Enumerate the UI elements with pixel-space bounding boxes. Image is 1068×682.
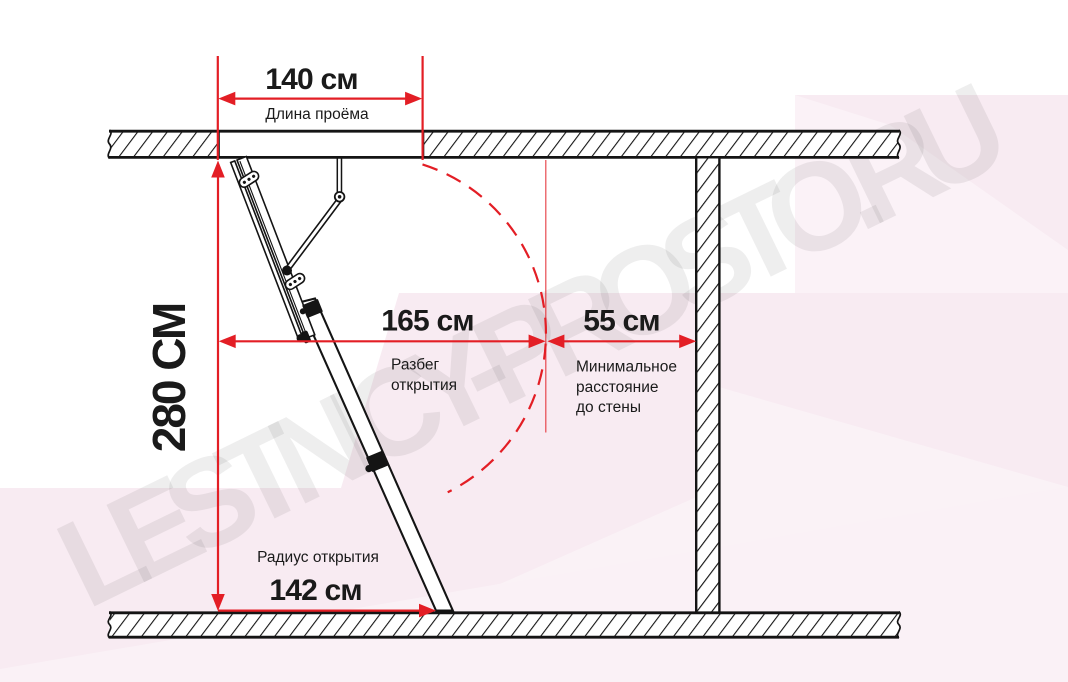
svg-text:до стены: до стены [576, 399, 641, 416]
svg-text:Минимальное: Минимальное [576, 359, 677, 376]
svg-text:Радиус открытия: Радиус открытия [257, 549, 379, 566]
svg-text:142 см: 142 см [269, 574, 361, 607]
svg-text:165 см: 165 см [381, 305, 473, 338]
svg-text:расстояние: расстояние [576, 379, 659, 396]
svg-text:Разбег: Разбег [391, 357, 440, 374]
svg-text:55 см: 55 см [583, 305, 660, 338]
svg-text:140 см: 140 см [265, 63, 357, 96]
svg-text:Длина проёма: Длина проёма [265, 106, 369, 123]
svg-text:280 СМ: 280 СМ [143, 304, 195, 452]
svg-text:открытия: открытия [391, 377, 457, 394]
